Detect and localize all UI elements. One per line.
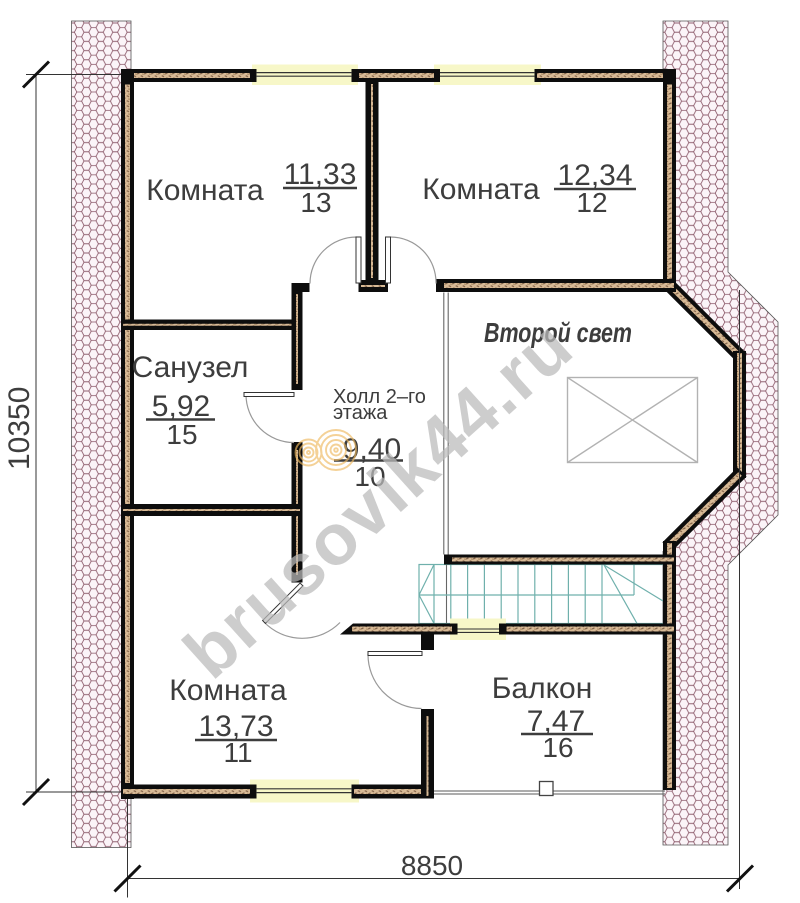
- svg-text:16: 16: [542, 732, 573, 763]
- svg-text:Санузел: Санузел: [132, 351, 249, 384]
- svg-text:15: 15: [166, 419, 197, 450]
- svg-text:13: 13: [300, 187, 331, 218]
- svg-text:8850: 8850: [401, 850, 463, 881]
- svg-text:Балкон: Балкон: [492, 672, 593, 705]
- svg-text:12: 12: [576, 187, 607, 218]
- svg-text:этажа: этажа: [333, 402, 388, 424]
- svg-text:Комната: Комната: [146, 174, 264, 207]
- svg-text:Комната: Комната: [422, 173, 540, 206]
- svg-text:11: 11: [223, 737, 252, 768]
- svg-text:10350: 10350: [3, 387, 36, 470]
